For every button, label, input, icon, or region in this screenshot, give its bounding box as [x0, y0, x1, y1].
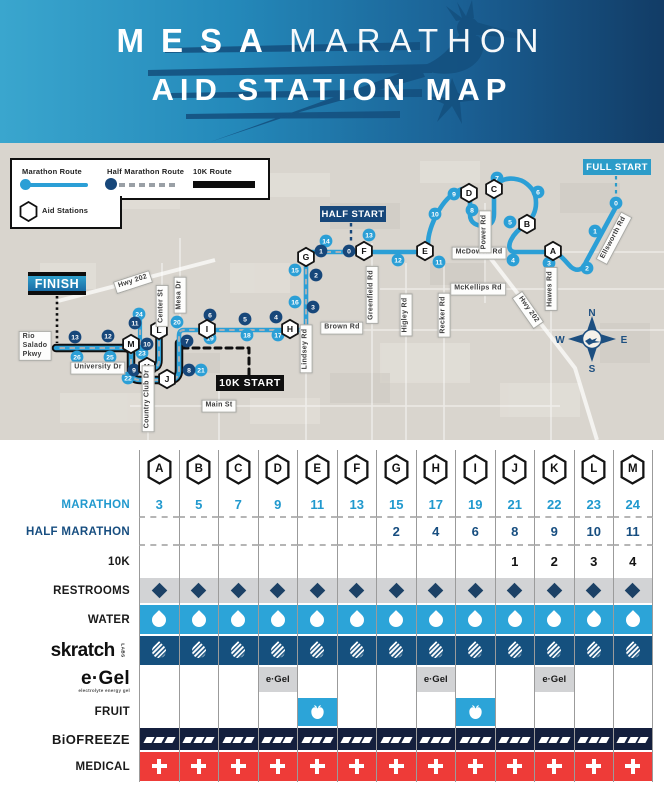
table-cell [534, 727, 574, 751]
station-column-header: H [422, 454, 449, 485]
table-cell [574, 577, 614, 604]
table-cell [613, 635, 653, 666]
svg-text:G: G [303, 252, 310, 262]
full-start-label: FULL START [583, 159, 651, 175]
biofreeze-dashes-icon [499, 730, 531, 748]
table-cell [258, 751, 298, 782]
table-cell [495, 751, 535, 782]
mile-number: 13 [350, 497, 364, 512]
row-label-marathon: MARATHON [0, 492, 139, 518]
table-cell: E [297, 450, 337, 492]
table-cell [179, 727, 219, 751]
water-drop-icon [228, 611, 248, 631]
svg-text:5: 5 [508, 219, 512, 226]
table-cell: e·Gel [416, 666, 456, 697]
skratch-drop-icon [465, 642, 485, 662]
compass-south: S [589, 364, 596, 375]
legend-10k-line-icon [193, 181, 255, 188]
table-cell [613, 727, 653, 751]
table-cell [534, 604, 574, 635]
restroom-diamond-icon [586, 583, 602, 599]
page-title: MESA MARATHON [0, 22, 664, 60]
table-cell: G [376, 450, 416, 492]
svg-text:7: 7 [185, 338, 189, 345]
table-cell [376, 577, 416, 604]
skratch-drop-icon [584, 642, 604, 662]
table-cell: I [455, 450, 495, 492]
egel-logo: e·Gelelectrolyte energy gel [78, 669, 130, 694]
table-cell [416, 604, 456, 635]
table-cell [258, 518, 298, 546]
table-cell [613, 604, 653, 635]
table-cell [258, 697, 298, 727]
table-cell [297, 518, 337, 546]
table-cell [455, 635, 495, 666]
svg-text:4: 4 [274, 314, 278, 321]
restroom-diamond-icon [230, 583, 246, 599]
svg-text:4: 4 [511, 257, 515, 264]
svg-text:11: 11 [435, 259, 442, 266]
station-column-header: K [541, 454, 568, 485]
biofreeze-dashes-icon [538, 730, 570, 748]
table-cell: e·Gel [534, 666, 574, 697]
table-cell [455, 727, 495, 751]
mile-number: 7 [235, 497, 242, 512]
station-column-header: B [185, 454, 212, 485]
table-cell [495, 577, 535, 604]
table-cell: M [613, 450, 653, 492]
table-cell [574, 727, 614, 751]
svg-text:18: 18 [243, 332, 251, 339]
svg-text:20: 20 [173, 319, 181, 326]
table-cell: 1 [495, 546, 535, 577]
table-cell: 9 [534, 518, 574, 546]
table-cell [376, 727, 416, 751]
table-cell: 13 [337, 492, 377, 518]
medical-cross-icon [270, 759, 285, 774]
mile-number: 15 [389, 497, 403, 512]
table-cell [337, 518, 377, 546]
svg-text:D: D [466, 188, 472, 198]
table-cell [297, 635, 337, 666]
svg-text:C: C [491, 184, 497, 194]
table-cell: D [258, 450, 298, 492]
station-column-header: C [225, 454, 252, 485]
table-cell [139, 751, 179, 782]
biofreeze-dashes-icon [578, 730, 610, 748]
legend-aid-label: Aid Stations [42, 206, 88, 215]
station-column-header: F [343, 454, 370, 485]
table-cell [416, 697, 456, 727]
svg-text:0: 0 [347, 248, 351, 255]
medical-cross-icon [507, 759, 522, 774]
biofreeze-dashes-icon [183, 730, 215, 748]
fruit-apple-icon [468, 704, 483, 720]
row-label-10k: 10K [0, 546, 139, 577]
skratch-drop-icon [347, 642, 367, 662]
svg-text:9: 9 [132, 367, 136, 374]
medical-cross-icon [231, 759, 246, 774]
table-cell [574, 604, 614, 635]
skratch-drop-icon [189, 642, 209, 662]
table-cell: 10 [574, 518, 614, 546]
table-cell: 2 [376, 518, 416, 546]
table-cell [139, 666, 179, 697]
compass-east: E [621, 335, 628, 346]
station-column-header: E [304, 454, 331, 485]
svg-text:1: 1 [593, 228, 597, 235]
table-cell [495, 635, 535, 666]
table-corner [0, 450, 139, 492]
table-cell: 8 [495, 518, 535, 546]
svg-text:12: 12 [104, 333, 112, 340]
table-cell [297, 697, 337, 727]
svg-text:3: 3 [311, 304, 315, 311]
svg-text:H: H [287, 324, 293, 334]
table-cell [297, 666, 337, 697]
table-cell [337, 546, 377, 577]
table-cell: C [218, 450, 258, 492]
mile-number: 23 [587, 497, 601, 512]
table-cell [376, 546, 416, 577]
route-map: 0123456789101112131415161718192021222324… [0, 143, 664, 440]
table-cell [376, 666, 416, 697]
water-drop-icon [426, 611, 446, 631]
table-cell [495, 697, 535, 727]
table-cell [337, 577, 377, 604]
medical-cross-icon [191, 759, 206, 774]
table-cell: 7 [218, 492, 258, 518]
table-cell [495, 666, 535, 697]
svg-text:17: 17 [274, 332, 282, 339]
table-cell: 15 [376, 492, 416, 518]
table-cell [139, 604, 179, 635]
table-cell: e·Gel [258, 666, 298, 697]
table-cell [179, 635, 219, 666]
svg-text:25: 25 [106, 354, 114, 361]
skratch-drop-icon [149, 642, 169, 662]
water-drop-icon [189, 611, 209, 631]
mile-number: 4 [629, 554, 636, 569]
legend-10k-label: 10K Route [193, 167, 232, 176]
aid-station-hexagon-icon [19, 201, 38, 222]
table-cell [179, 751, 219, 782]
egel-cell: e·Gel [535, 667, 574, 692]
table-cell [376, 604, 416, 635]
skratch-drop-icon [544, 642, 564, 662]
svg-text:9: 9 [452, 191, 456, 198]
table-cell [179, 577, 219, 604]
svg-text:F: F [361, 246, 366, 256]
mile-number: 5 [195, 497, 202, 512]
skratch-drop-icon [426, 642, 446, 662]
restroom-diamond-icon [349, 583, 365, 599]
egel-cell: e·Gel [417, 667, 456, 692]
table-cell [337, 727, 377, 751]
table-cell [258, 604, 298, 635]
svg-text:3: 3 [547, 260, 551, 267]
table-cell: L [574, 450, 614, 492]
table-cell [179, 666, 219, 697]
row-label-restrooms: RESTROOMS [0, 577, 139, 604]
svg-text:6: 6 [208, 312, 212, 319]
table-cell [218, 697, 258, 727]
map-legend-aid: Aid Stations [10, 196, 122, 229]
table-cell [337, 666, 377, 697]
table-cell: 21 [495, 492, 535, 518]
table-cell [258, 635, 298, 666]
map-legend: Marathon Route Half Marathon Route 10K R… [10, 158, 270, 200]
table-cell [534, 577, 574, 604]
mile-number: 17 [429, 497, 443, 512]
skratch-drop-icon [268, 642, 288, 662]
biofreeze-dashes-icon [301, 730, 333, 748]
water-drop-icon [505, 611, 525, 631]
table-cell [218, 546, 258, 577]
water-drop-icon [307, 611, 327, 631]
table-cell [376, 635, 416, 666]
mile-number: 4 [432, 524, 439, 539]
svg-text:B: B [524, 219, 530, 229]
row-label-fruit: FRUIT [0, 697, 139, 727]
skratch-drop-icon [307, 642, 327, 662]
biofreeze-dashes-icon [380, 730, 412, 748]
table-cell [495, 727, 535, 751]
svg-text:8: 8 [187, 367, 191, 374]
table-cell [139, 697, 179, 727]
table-cell [376, 751, 416, 782]
mile-number: 8 [511, 524, 518, 539]
svg-text:K: K [144, 362, 151, 372]
table-cell: 6 [455, 518, 495, 546]
table-cell [218, 518, 258, 546]
table-cell [613, 577, 653, 604]
legend-half-label: Half Marathon Route [107, 167, 184, 176]
table-cell [613, 697, 653, 727]
water-drop-icon [584, 611, 604, 631]
title-mesa: MESA [117, 22, 280, 59]
table-cell: K [534, 450, 574, 492]
table-cell [297, 751, 337, 782]
station-column-header: I [462, 454, 489, 485]
table-cell: F [337, 450, 377, 492]
restroom-diamond-icon [388, 583, 404, 599]
table-cell: 4 [416, 518, 456, 546]
row-label-medical: MEDICAL [0, 751, 139, 782]
table-cell [455, 577, 495, 604]
svg-text:13: 13 [365, 232, 373, 239]
table-cell: J [495, 450, 535, 492]
table-cell [455, 546, 495, 577]
station-column-header: L [580, 454, 607, 485]
biofreeze-dashes-icon [420, 730, 452, 748]
svg-text:6: 6 [536, 189, 540, 196]
table-cell [297, 577, 337, 604]
svg-text:M: M [127, 339, 134, 349]
mile-number: 22 [547, 497, 561, 512]
svg-text:1: 1 [319, 248, 323, 255]
medical-cross-icon [349, 759, 364, 774]
table-cell [297, 546, 337, 577]
restroom-diamond-icon [546, 583, 562, 599]
mile-number: 24 [626, 497, 640, 512]
table-cell [218, 577, 258, 604]
table-cell [139, 727, 179, 751]
row-label-egel: e·Gelelectrolyte energy gel [0, 666, 139, 697]
legend-marathon-label: Marathon Route [22, 167, 82, 176]
table-cell [297, 727, 337, 751]
medical-cross-icon [586, 759, 601, 774]
title-marathon: MARATHON [289, 22, 547, 59]
table-cell: H [416, 450, 456, 492]
table-cell [574, 697, 614, 727]
table-cell: 19 [455, 492, 495, 518]
station-column-header: A [146, 454, 173, 485]
table-cell [416, 751, 456, 782]
table-cell: 11 [613, 518, 653, 546]
table-cell [179, 518, 219, 546]
table-cell: B [179, 450, 219, 492]
svg-text:10: 10 [143, 341, 151, 348]
aid-station-table: ABCDEFGHIJKLMMARATHON3579111315171921222… [0, 450, 653, 782]
table-cell [218, 635, 258, 666]
table-cell: A [139, 450, 179, 492]
table-cell [297, 604, 337, 635]
medical-cross-icon [152, 759, 167, 774]
legend-half-dot-icon [105, 178, 117, 190]
table-cell [139, 518, 179, 546]
table-cell [376, 697, 416, 727]
mile-number: 9 [551, 524, 558, 539]
svg-text:11: 11 [131, 320, 138, 327]
svg-text:14: 14 [322, 238, 330, 245]
table-cell [416, 727, 456, 751]
mile-number: 19 [468, 497, 482, 512]
medical-cross-icon [310, 759, 325, 774]
svg-text:J: J [165, 374, 170, 384]
compass-north: N [588, 308, 595, 319]
mile-number: 2 [551, 554, 558, 569]
table-cell [534, 635, 574, 666]
restroom-diamond-icon [507, 583, 523, 599]
water-drop-icon [149, 611, 169, 631]
biofreeze-dashes-icon [143, 730, 175, 748]
mile-number: 3 [156, 497, 163, 512]
svg-text:0: 0 [614, 200, 618, 207]
table-cell: 24 [613, 492, 653, 518]
table-cell [495, 604, 535, 635]
table-cell [139, 635, 179, 666]
mile-number: 2 [393, 524, 400, 539]
medical-cross-icon [468, 759, 483, 774]
table-cell [337, 604, 377, 635]
mile-number: 9 [274, 497, 281, 512]
table-cell [337, 697, 377, 727]
header-banner: MESA MARATHON AID STATION MAP [0, 0, 664, 143]
station-column-header: M [619, 454, 646, 485]
table-cell [139, 577, 179, 604]
skratch-drop-icon [228, 642, 248, 662]
svg-text:5: 5 [243, 316, 247, 323]
table-cell [218, 751, 258, 782]
table-cell [534, 697, 574, 727]
table-cell: 11 [297, 492, 337, 518]
restroom-diamond-icon [309, 583, 325, 599]
svg-text:2: 2 [314, 272, 318, 279]
table-cell [179, 604, 219, 635]
water-drop-icon [544, 611, 564, 631]
table-cell [416, 577, 456, 604]
restroom-diamond-icon [191, 583, 207, 599]
half-start-label: HALF START [320, 206, 386, 222]
svg-text:26: 26 [73, 354, 81, 361]
svg-text:22: 22 [124, 375, 132, 382]
biofreeze-dashes-icon [341, 730, 373, 748]
svg-text:10: 10 [431, 211, 439, 218]
table-cell: 3 [139, 492, 179, 518]
table-cell [258, 727, 298, 751]
restroom-diamond-icon [428, 583, 444, 599]
biofreeze-logo: BiOFREEZE [52, 732, 130, 747]
restroom-diamond-icon [151, 583, 167, 599]
restroom-diamond-icon [467, 583, 483, 599]
table-cell [534, 751, 574, 782]
table-cell [258, 546, 298, 577]
table-cell [574, 751, 614, 782]
page-subtitle: AID STATION MAP [0, 72, 664, 108]
water-drop-icon [268, 611, 288, 631]
row-label-biofreeze: BiOFREEZE [0, 727, 139, 751]
water-drop-icon [386, 611, 406, 631]
table-cell [416, 546, 456, 577]
table-cell: 2 [534, 546, 574, 577]
fruit-apple-icon [310, 704, 325, 720]
medical-cross-icon [625, 759, 640, 774]
mile-number: 10 [587, 524, 601, 539]
medical-cross-icon [547, 759, 562, 774]
finish-label: FINISH [28, 272, 86, 295]
table-cell [218, 666, 258, 697]
table-cell [218, 727, 258, 751]
row-label-half-marathon: HALF MARATHON [0, 518, 139, 546]
table-cell: 4 [613, 546, 653, 577]
table-cell [455, 697, 495, 727]
svg-text:2: 2 [585, 265, 589, 272]
skratch-logo: skratchLABS [51, 640, 130, 662]
table-cell [455, 604, 495, 635]
svg-text:L: L [156, 325, 161, 335]
svg-text:16: 16 [291, 299, 299, 306]
tenk-start-label: 10K START [216, 375, 284, 391]
mile-number: 3 [590, 554, 597, 569]
medical-cross-icon [428, 759, 443, 774]
table-cell: 17 [416, 492, 456, 518]
skratch-drop-icon [505, 642, 525, 662]
biofreeze-dashes-icon [459, 730, 491, 748]
biofreeze-dashes-icon [222, 730, 254, 748]
table-cell [139, 546, 179, 577]
table-cell [455, 666, 495, 697]
table-cell [337, 635, 377, 666]
mile-number: 21 [508, 497, 522, 512]
table-cell [179, 546, 219, 577]
table-cell [258, 577, 298, 604]
svg-text:21: 21 [197, 367, 205, 374]
legend-marathon-line-icon [28, 183, 88, 187]
table-cell: 3 [574, 546, 614, 577]
svg-text:E: E [422, 246, 428, 256]
table-cell [218, 604, 258, 635]
